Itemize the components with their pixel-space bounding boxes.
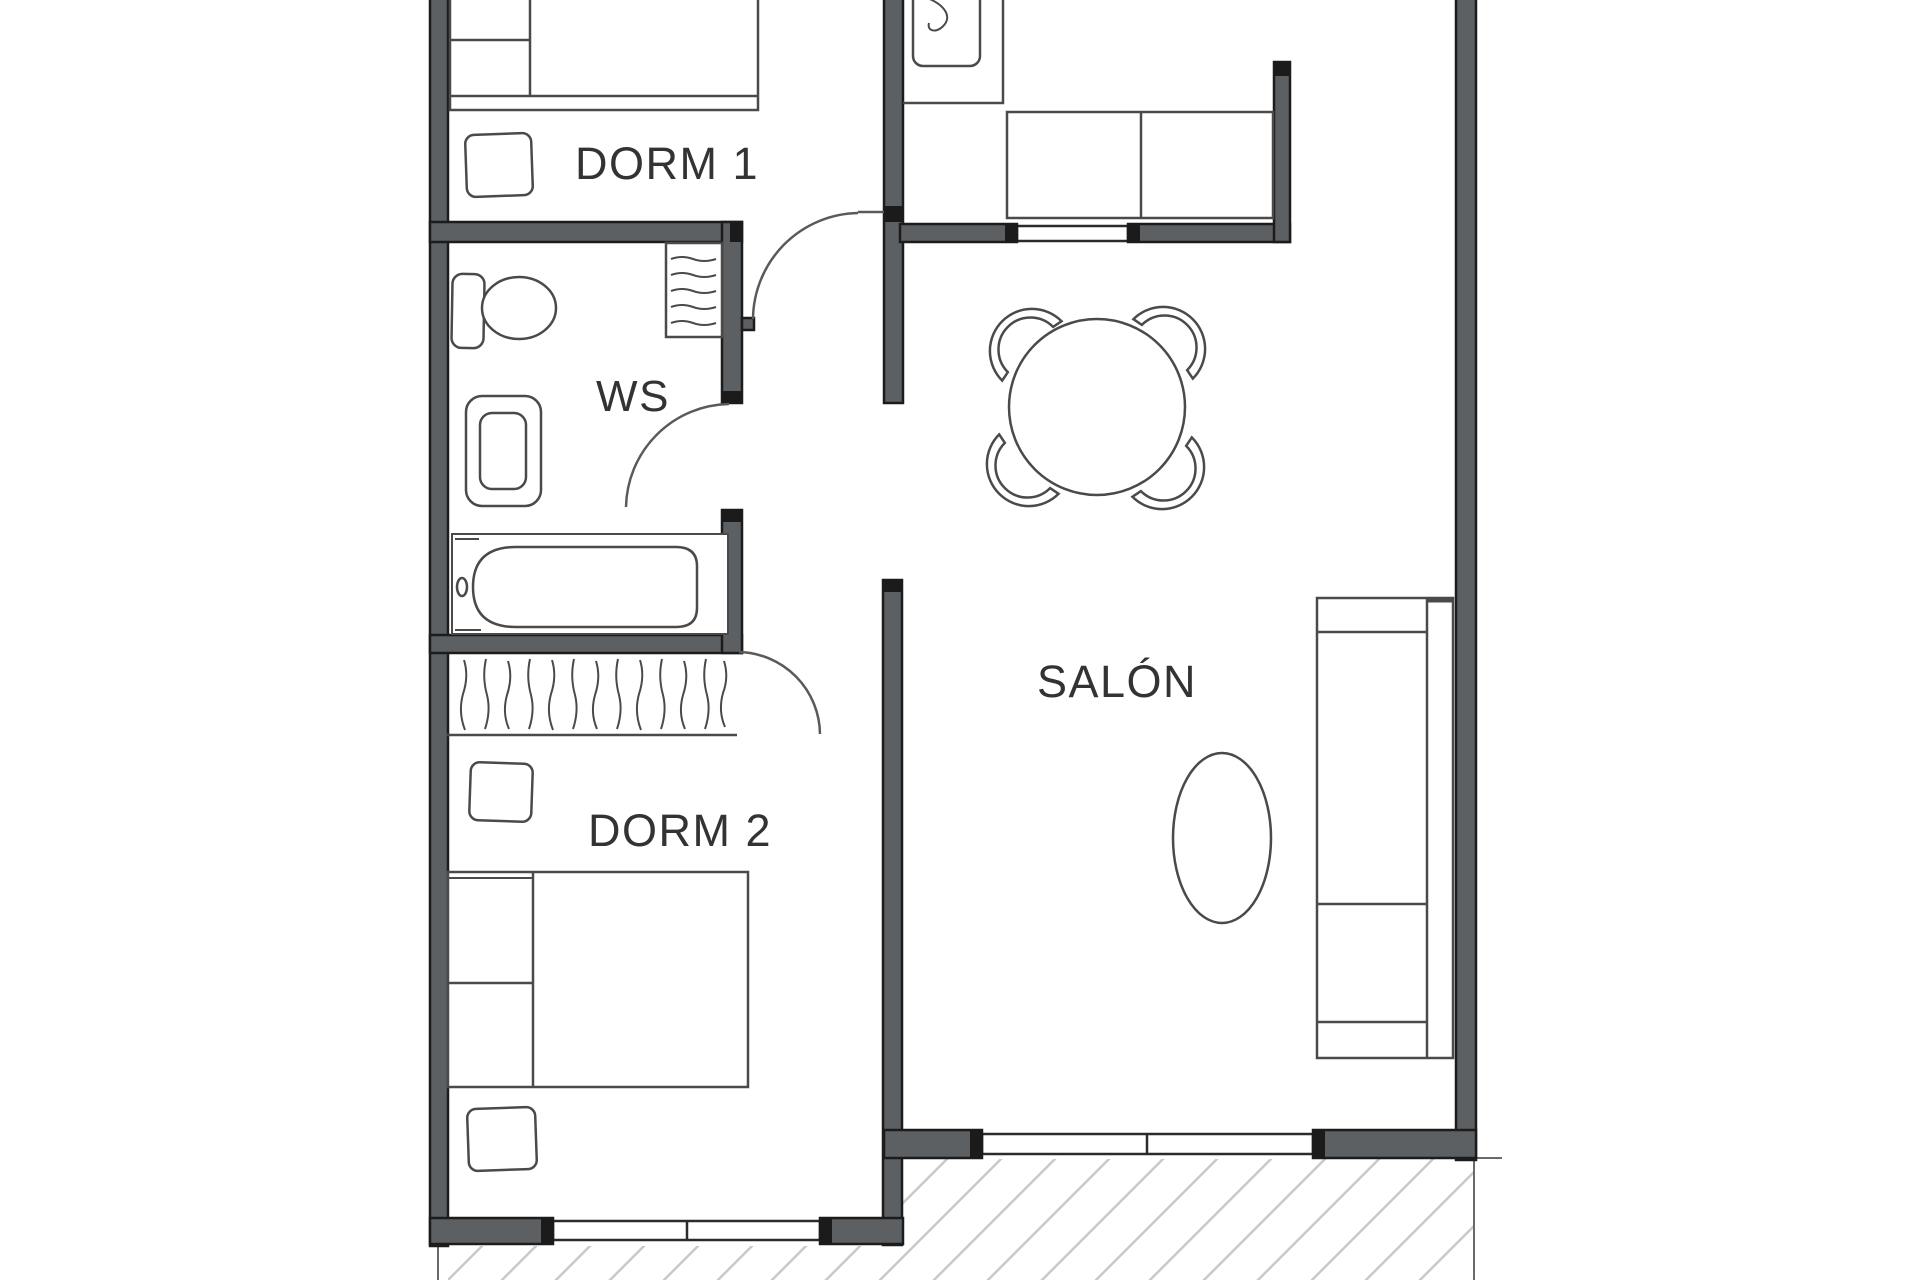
wall-dorm2-south-left [430,1218,553,1244]
ws-furniture [451,243,728,634]
bathtub-icon [452,534,728,634]
dining-set [970,290,1223,527]
room-label-dorm2: DORM 2 [588,805,772,857]
double-bed-icon [450,0,758,110]
room-label-dorm1: DORM 1 [575,138,759,190]
wardrobe-icon [447,659,737,735]
window-icon [1017,226,1128,241]
coffee-table-icon [1173,753,1271,923]
door-swing-icon [739,652,820,734]
double-bed-icon [448,872,748,1087]
towel-radiator-icon [666,243,722,337]
fridge-icon [913,0,980,66]
wall-exterior-left [430,0,448,1246]
wall-dorm2-south-right [820,1218,903,1244]
wall-kitchen-south-left [900,224,1017,242]
dining-table-icon [1009,319,1185,495]
door-swing-icon [753,212,884,319]
wall-divider-upper [884,0,903,403]
toilet-icon [451,274,556,349]
sink-icon [466,396,541,506]
kitchen-furniture [903,0,1273,218]
floor-plan-drawing [0,0,1920,1280]
wall-exterior-right [1456,0,1476,1160]
wall-ws-right-upper [722,222,742,403]
tap-icon [457,578,467,596]
window-icon [982,1134,1313,1154]
terrace-hatch-icon [438,1158,1502,1280]
nightstand-icon [469,762,533,822]
wall-ws-south [430,635,742,653]
sofa-icon [1317,598,1453,1058]
wall-salon-south-right [1313,1130,1476,1158]
salon-furniture [1173,598,1453,1058]
nightstand-icon [465,133,533,197]
window-icon [553,1221,820,1240]
wall-door-stub [742,318,754,330]
room-label-ws: WS [596,372,670,422]
doors [626,212,884,734]
floor-plan: DORM 1 WS DORM 2 SALÓN [0,0,1920,1280]
wall-kitchen-end [1274,62,1290,242]
nightstand-icon [467,1107,537,1171]
wall-kitchen-south-right [1128,224,1290,242]
wall-salon-south-left [884,1130,982,1158]
wall-dorm1-ws [430,222,742,242]
room-label-salon: SALÓN [1037,656,1197,708]
